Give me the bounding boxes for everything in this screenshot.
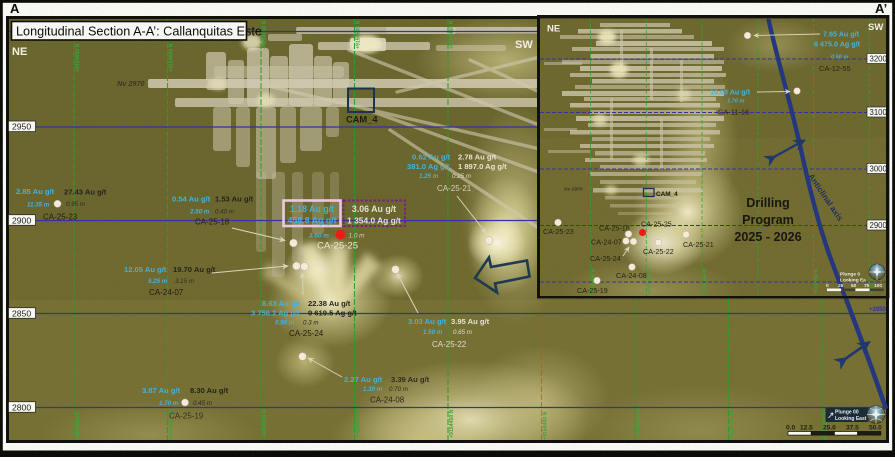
svg-text:A: A [10, 1, 20, 16]
svg-text:A’: A’ [875, 1, 887, 16]
